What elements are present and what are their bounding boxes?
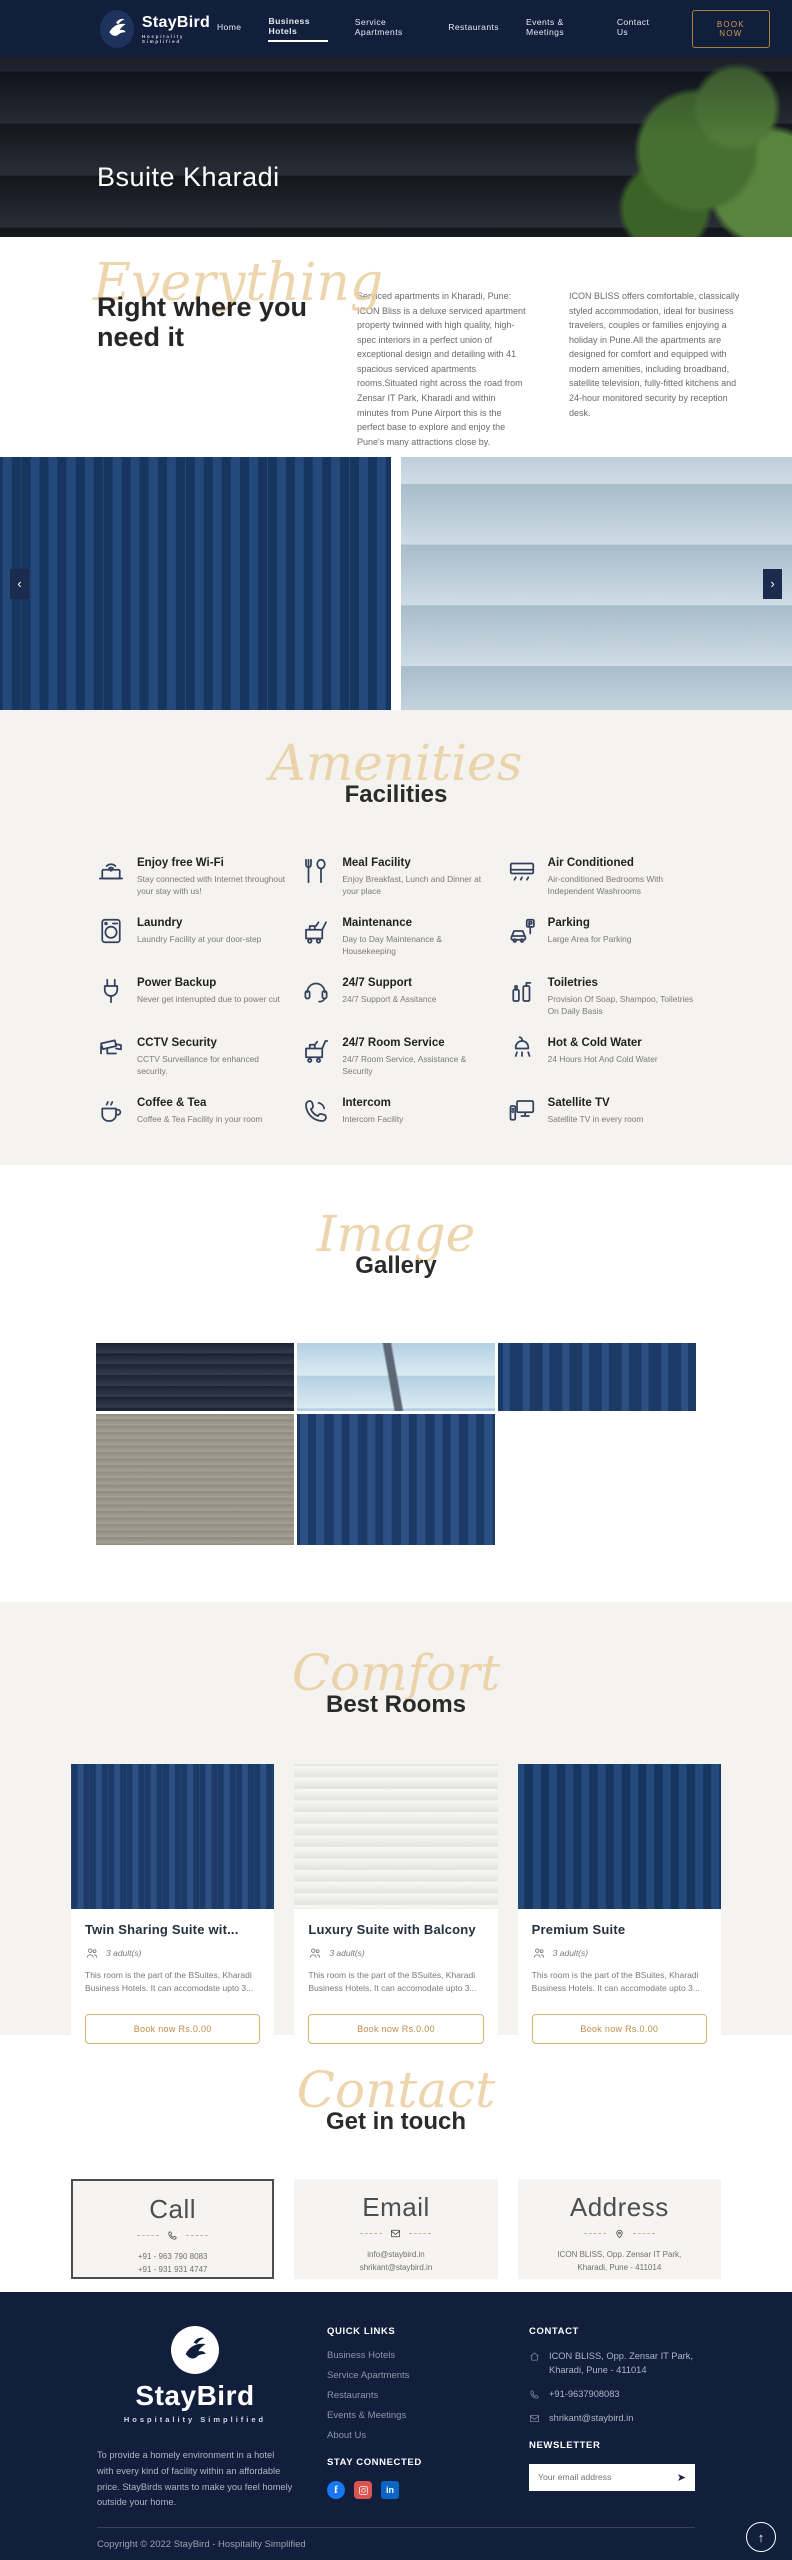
phone-number[interactable]: +91 - 931 931 4747 xyxy=(83,2264,262,2277)
facility-item-maintenance: Maintenance Day to Day Maintenance & Hou… xyxy=(301,916,490,963)
footer-link-restaurants[interactable]: Restaurants xyxy=(327,2390,495,2401)
footer-address-row: ICON BLISS, Opp. Zensar IT Park, Kharadi… xyxy=(529,2350,695,2378)
gallery-grid xyxy=(96,1343,696,1545)
facility-description: Laundry Facility at your door-step xyxy=(137,933,261,945)
car-parking-icon xyxy=(507,916,537,963)
contact-title: Get in touch xyxy=(0,2108,792,2136)
contact-card-title: Email xyxy=(304,2192,487,2223)
instagram-icon[interactable] xyxy=(354,2481,372,2499)
service-cart-icon xyxy=(301,1036,331,1083)
contact-icon-row xyxy=(83,2230,262,2241)
intro-heading-block: Everything Right where you need it xyxy=(97,237,315,457)
room-occupancy-text: 3 adult(s) xyxy=(106,1948,141,1958)
rooms-title: Best Rooms xyxy=(0,1691,792,1719)
bird-logo-icon xyxy=(100,10,134,48)
facility-description: Never get interrupted due to power cut xyxy=(137,993,280,1005)
facility-item-wifi: Enjoy free Wi-Fi Stay connected with Int… xyxy=(96,856,285,903)
footer-link-service-apartments[interactable]: Service Apartments xyxy=(327,2370,495,2381)
gallery-photo-bedroom-carpet[interactable] xyxy=(498,1343,696,1411)
room-title: Premium Suite xyxy=(532,1922,707,1937)
book-room-button[interactable]: Book now Rs.0.00 xyxy=(85,2014,260,2044)
footer-phone[interactable]: +91-9637908083 xyxy=(549,2388,620,2402)
facility-title: Maintenance xyxy=(342,917,490,929)
washing-machine-icon xyxy=(96,916,126,963)
facility-item-intercom: Intercom Intercom Facility xyxy=(301,1096,490,1143)
wifi-laptop-icon xyxy=(96,856,126,903)
facility-title: Power Backup xyxy=(137,977,280,989)
cctv-camera-icon xyxy=(96,1036,126,1083)
contact-card-email: Email info@staybird.in shrikant@staybird… xyxy=(294,2179,497,2279)
contact-icon-row xyxy=(304,2228,487,2239)
gallery-title: Gallery xyxy=(0,1252,792,1280)
room-occupancy-text: 3 adult(s) xyxy=(553,1948,588,1958)
envelope-icon xyxy=(390,2228,401,2239)
facility-title: Coffee & Tea xyxy=(137,1097,262,1109)
intro-paragraphs: Serviced apartments in Kharadi, Pune: IC… xyxy=(357,289,741,457)
room-description: This room is the part of the BSuites, Kh… xyxy=(85,1969,260,1997)
footer-link-business-hotels[interactable]: Business Hotels xyxy=(327,2350,495,2361)
footer-link-events-meetings[interactable]: Events & Meetings xyxy=(327,2410,495,2421)
stay-connected-heading: STAY CONNECTED xyxy=(327,2457,495,2468)
nav-item-events-meetings[interactable]: Events & Meetings xyxy=(526,17,590,41)
photo-carousel: ‹ › xyxy=(0,457,792,710)
brand-text: StayBird Hospitality Simplified xyxy=(142,14,217,44)
facility-title: Laundry xyxy=(137,917,261,929)
facility-item-coffee: Coffee & Tea Coffee & Tea Facility in yo… xyxy=(96,1096,285,1143)
room-card-body: Twin Sharing Suite wit... 3 adult(s) Thi… xyxy=(71,1909,274,2060)
facility-title: Satellite TV xyxy=(548,1097,644,1109)
facility-description: 24/7 Support & Assitance xyxy=(342,993,436,1005)
headset-icon xyxy=(301,976,331,1023)
facility-item-water: Hot & Cold Water 24 Hours Hot And Cold W… xyxy=(507,1036,696,1083)
contact-card-lines: +91 - 963 790 8083 +91 - 931 931 4747 xyxy=(83,2251,262,2277)
footer: StayBird Hospitality Simplified To provi… xyxy=(0,2292,792,2560)
contact-card-lines: ICON BLISS, Opp. Zensar IT Park, Kharadi… xyxy=(528,2249,711,2275)
facility-description: Intercom Facility xyxy=(342,1113,403,1125)
facility-title: Air Conditioned xyxy=(548,857,696,869)
facility-title: Intercom xyxy=(342,1097,403,1109)
room-occupancy: 3 adult(s) xyxy=(85,1946,260,1960)
newsletter-input-box: ➤ xyxy=(529,2464,695,2491)
gallery-photo-bedroom-tv[interactable] xyxy=(96,1343,294,1411)
room-title: Luxury Suite with Balcony xyxy=(308,1922,483,1937)
toiletries-bottles-icon xyxy=(507,976,537,1023)
map-pin-icon xyxy=(614,2228,625,2239)
hero-photo xyxy=(0,57,792,237)
gallery-photo-balcony[interactable] xyxy=(297,1343,495,1411)
air-conditioner-icon xyxy=(507,856,537,903)
facility-title: Parking xyxy=(548,917,632,929)
footer-contact-heading: CONTACT xyxy=(529,2326,695,2337)
dash-decor xyxy=(633,2233,655,2234)
facility-item-power: Power Backup Never get interrupted due t… xyxy=(96,976,285,1023)
page-title: Bsuite Kharadi xyxy=(97,162,280,193)
main-nav: Home Business Hotels Service Apartments … xyxy=(217,10,770,48)
contact-card-call: Call +91 - 963 790 8083 +91 - 931 931 47… xyxy=(71,2179,274,2279)
room-photo xyxy=(518,1764,721,1909)
nav-item-restaurants[interactable]: Restaurants xyxy=(448,22,499,36)
guests-icon xyxy=(532,1946,546,1960)
intro-paragraph-2: ICON BLISS offers comfortable, classical… xyxy=(569,289,741,457)
tv-remote-icon xyxy=(507,1096,537,1143)
facility-item-ac: Air Conditioned Air-conditioned Bedrooms… xyxy=(507,856,696,903)
email-address[interactable]: info@staybird.in xyxy=(304,2249,487,2262)
facility-description: 24 Hours Hot And Cold Water xyxy=(548,1053,658,1065)
facility-title: 24/7 Support xyxy=(342,977,436,989)
facility-title: Enjoy free Wi-Fi xyxy=(137,857,285,869)
carousel-next-button[interactable]: › xyxy=(763,569,782,599)
facility-title: 24/7 Room Service xyxy=(342,1037,490,1049)
intro-section: Everything Right where you need it Servi… xyxy=(0,237,792,457)
facility-item-laundry: Laundry Laundry Facility at your door-st… xyxy=(96,916,285,963)
book-room-button[interactable]: Book now Rs.0.00 xyxy=(532,2014,707,2044)
facility-description: Stay connected with Internet throughout … xyxy=(137,873,285,897)
room-description: This room is the part of the BSuites, Kh… xyxy=(532,1969,707,1997)
facility-description: CCTV Surveillance for enhanced security. xyxy=(137,1053,285,1077)
nav-item-service-apartments[interactable]: Service Apartments xyxy=(355,17,421,41)
footer-about-text: To provide a homely environment in a hot… xyxy=(97,2448,293,2511)
phone-number[interactable]: +91 - 963 790 8083 xyxy=(83,2251,262,2264)
room-occupancy: 3 adult(s) xyxy=(532,1946,707,1960)
facility-item-room-service: 24/7 Room Service 24/7 Room Service, Ass… xyxy=(301,1036,490,1083)
facility-title: Toiletries xyxy=(548,977,696,989)
brand-logo[interactable]: StayBird Hospitality Simplified xyxy=(100,10,217,48)
room-card-premium-suite: Premium Suite 3 adult(s) This room is th… xyxy=(518,1764,721,2060)
footer-contact-column: CONTACT ICON BLISS, Opp. Zensar IT Park,… xyxy=(529,2326,695,2511)
email-address[interactable]: shrikant@staybird.in xyxy=(304,2262,487,2275)
newsletter-heading: NEWSLETTER xyxy=(529,2440,695,2451)
dash-decor xyxy=(409,2233,431,2234)
bird-logo-icon[interactable] xyxy=(171,2326,219,2374)
contact-card-address: Address ICON BLISS, Opp. Zensar IT Park,… xyxy=(518,2179,721,2279)
facility-item-support: 24/7 Support 24/7 Support & Assitance xyxy=(301,976,490,1023)
dash-decor xyxy=(584,2233,606,2234)
envelope-icon xyxy=(529,2413,540,2424)
carousel-photo-bathroom xyxy=(401,457,792,710)
facility-item-tv: Satellite TV Satellite TV in every room xyxy=(507,1096,696,1143)
contact-section: Contact Get in touch Call +91 - 963 790 … xyxy=(0,2035,792,2292)
best-rooms-section: Comfort Best Rooms Twin Sharing Suite wi… xyxy=(0,1602,792,2035)
brand-name: StayBird xyxy=(142,14,217,32)
room-card-body: Premium Suite 3 adult(s) This room is th… xyxy=(518,1909,721,2060)
copyright-text: Copyright © 2022 StayBird - Hospitality … xyxy=(97,2539,306,2550)
facility-item-cctv: CCTV Security CCTV Surveillance for enha… xyxy=(96,1036,285,1083)
dash-decor xyxy=(137,2235,159,2236)
coffee-cup-icon xyxy=(96,1096,126,1143)
gallery-empty-cell xyxy=(498,1414,696,1545)
hero-section: Bsuite Kharadi xyxy=(0,57,792,237)
footer-brand-tagline: Hospitality Simplified xyxy=(97,2415,293,2424)
footer-columns: StayBird Hospitality Simplified To provi… xyxy=(97,2326,695,2511)
footer-links-column: QUICK LINKS Business Hotels Service Apar… xyxy=(327,2326,495,2511)
newsletter-send-button[interactable]: ➤ xyxy=(677,2471,686,2484)
facility-description: Coffee & Tea Facility in your room xyxy=(137,1113,262,1125)
room-title: Twin Sharing Suite wit... xyxy=(85,1922,260,1937)
facility-item-meal: Meal Facility Enjoy Breakfast, Lunch and… xyxy=(301,856,490,903)
carousel-photo-bedroom xyxy=(0,457,391,710)
footer-email[interactable]: shrikant@staybird.in xyxy=(549,2412,633,2426)
intro-paragraph-1: Serviced apartments in Kharadi, Pune: IC… xyxy=(357,289,529,457)
footer-bottom-bar: Copyright © 2022 StayBird - Hospitality … xyxy=(97,2527,695,2550)
dash-decor xyxy=(360,2233,382,2234)
footer-phone-row: +91-9637908083 xyxy=(529,2388,695,2402)
phone-handset-icon xyxy=(301,1096,331,1143)
room-photo xyxy=(294,1764,497,1909)
facilities-title: Facilities xyxy=(0,781,792,809)
brand-tagline: Hospitality Simplified xyxy=(142,34,217,44)
room-occupancy: 3 adult(s) xyxy=(308,1946,483,1960)
facility-description: Large Area for Parking xyxy=(548,933,632,945)
room-occupancy-text: 3 adult(s) xyxy=(329,1948,364,1958)
book-room-button[interactable]: Book now Rs.0.00 xyxy=(308,2014,483,2044)
gallery-photo-bedroom-curtain[interactable] xyxy=(297,1414,495,1545)
home-icon xyxy=(529,2351,540,2362)
carousel-prev-button[interactable]: ‹ xyxy=(10,569,29,599)
facility-description: Air-conditioned Bedrooms With Independen… xyxy=(548,873,696,897)
facilities-grid: Enjoy free Wi-Fi Stay connected with Int… xyxy=(96,856,696,1143)
cutlery-icon xyxy=(301,856,331,903)
facility-description: 24/7 Room Service, Assistance & Security xyxy=(342,1053,490,1077)
nav-item-home[interactable]: Home xyxy=(217,22,242,36)
facilities-section: Amenities Facilities Enjoy free Wi-Fi St… xyxy=(0,710,792,1165)
footer-email-row: shrikant@staybird.in xyxy=(529,2412,695,2426)
gallery-heading-block: Image Gallery xyxy=(0,1205,792,1297)
facility-item-parking: Parking Large Area for Parking xyxy=(507,916,696,963)
room-cards: Twin Sharing Suite wit... 3 adult(s) Thi… xyxy=(71,1764,721,2060)
room-card-twin-sharing: Twin Sharing Suite wit... 3 adult(s) Thi… xyxy=(71,1764,274,2060)
facility-description: Satellite TV in every room xyxy=(548,1113,644,1125)
nav-item-contact-us[interactable]: Contact Us xyxy=(617,17,655,41)
nav-item-business-hotels[interactable]: Business Hotels xyxy=(268,16,327,42)
facility-title: CCTV Security xyxy=(137,1037,285,1049)
facility-item-toiletries: Toiletries Provision Of Soap, Shampoo, T… xyxy=(507,976,696,1023)
social-icons: f in xyxy=(327,2481,495,2499)
newsletter-block: NEWSLETTER ➤ xyxy=(529,2440,695,2491)
address-line: ICON BLISS, Opp. Zensar IT Park, xyxy=(528,2249,711,2262)
footer-link-about-us[interactable]: About Us xyxy=(327,2430,495,2441)
phone-icon xyxy=(167,2230,178,2241)
phone-icon xyxy=(529,2389,540,2400)
facilities-heading-block: Amenities Facilities xyxy=(0,734,792,826)
facility-description: Provision Of Soap, Shampoo, Toiletries O… xyxy=(548,993,696,1017)
contact-cards: Call +91 - 963 790 8083 +91 - 931 931 47… xyxy=(71,2179,721,2279)
power-plug-icon xyxy=(96,976,126,1023)
scroll-to-top-button[interactable]: ↑ xyxy=(746,2522,776,2552)
linkedin-icon[interactable]: in xyxy=(381,2481,399,2499)
room-photo xyxy=(71,1764,274,1909)
rooms-heading-block: Comfort Best Rooms xyxy=(0,1644,792,1736)
contact-heading-block: Contact Get in touch xyxy=(0,2061,792,2153)
contact-card-title: Call xyxy=(83,2194,262,2225)
room-card-luxury-suite: Luxury Suite with Balcony 3 adult(s) Thi… xyxy=(294,1764,497,2060)
room-card-body: Luxury Suite with Balcony 3 adult(s) Thi… xyxy=(294,1909,497,2060)
facility-title: Meal Facility xyxy=(342,857,490,869)
contact-card-title: Address xyxy=(528,2192,711,2223)
gallery-section: Image Gallery xyxy=(0,1165,792,1602)
address-line: Kharadi, Pune - 411014 xyxy=(528,2262,711,2275)
guests-icon xyxy=(308,1946,322,1960)
page: StayBird Hospitality Simplified Home Bus… xyxy=(0,0,792,2560)
gallery-photo-corridor[interactable] xyxy=(96,1414,294,1545)
book-now-button[interactable]: BOOK NOW xyxy=(692,10,770,48)
dash-decor xyxy=(186,2235,208,2236)
quick-links-heading: QUICK LINKS xyxy=(327,2326,495,2337)
housekeeping-cart-icon xyxy=(301,916,331,963)
facebook-icon[interactable]: f xyxy=(327,2481,345,2499)
room-description: This room is the part of the BSuites, Kh… xyxy=(308,1969,483,1997)
newsletter-email-input[interactable] xyxy=(538,2472,677,2482)
contact-icon-row xyxy=(528,2228,711,2239)
footer-brand-column: StayBird Hospitality Simplified To provi… xyxy=(97,2326,293,2511)
footer-brand-name: StayBird xyxy=(97,2380,293,2412)
facility-description: Enjoy Breakfast, Lunch and Dinner at you… xyxy=(342,873,490,897)
contact-card-lines: info@staybird.in shrikant@staybird.in xyxy=(304,2249,487,2275)
guests-icon xyxy=(85,1946,99,1960)
shower-icon xyxy=(507,1036,537,1083)
intro-heading: Right where you need it xyxy=(97,292,315,352)
footer-address: ICON BLISS, Opp. Zensar IT Park, Kharadi… xyxy=(549,2350,695,2378)
facility-description: Day to Day Maintenance & Housekeeping xyxy=(342,933,490,957)
header: StayBird Hospitality Simplified Home Bus… xyxy=(0,0,792,57)
facility-title: Hot & Cold Water xyxy=(548,1037,658,1049)
